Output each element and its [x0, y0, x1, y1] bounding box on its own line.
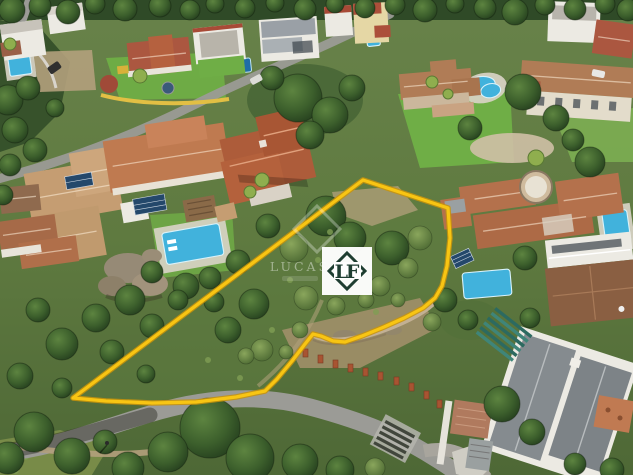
watermark-brand-text: LUCAS [270, 259, 330, 274]
house-modern-white [192, 23, 247, 78]
house-plot-east-neighbor [440, 196, 472, 230]
trampoline [162, 82, 174, 94]
house-top-right-red [592, 19, 633, 58]
watermark-badge: LF [322, 247, 372, 295]
swimming-pool [462, 269, 512, 299]
terrace-terracotta [593, 395, 633, 433]
aerial-photo: LUCAS LF [0, 0, 633, 475]
house-balcony-white [542, 231, 633, 326]
round-stone-tower [520, 171, 552, 203]
house-modern-gray [259, 16, 320, 62]
watermark-lf-monogram: LF [335, 261, 360, 283]
pedestrian [105, 441, 109, 445]
watermark-tagline [282, 276, 318, 281]
gazebo-roof [100, 75, 118, 93]
